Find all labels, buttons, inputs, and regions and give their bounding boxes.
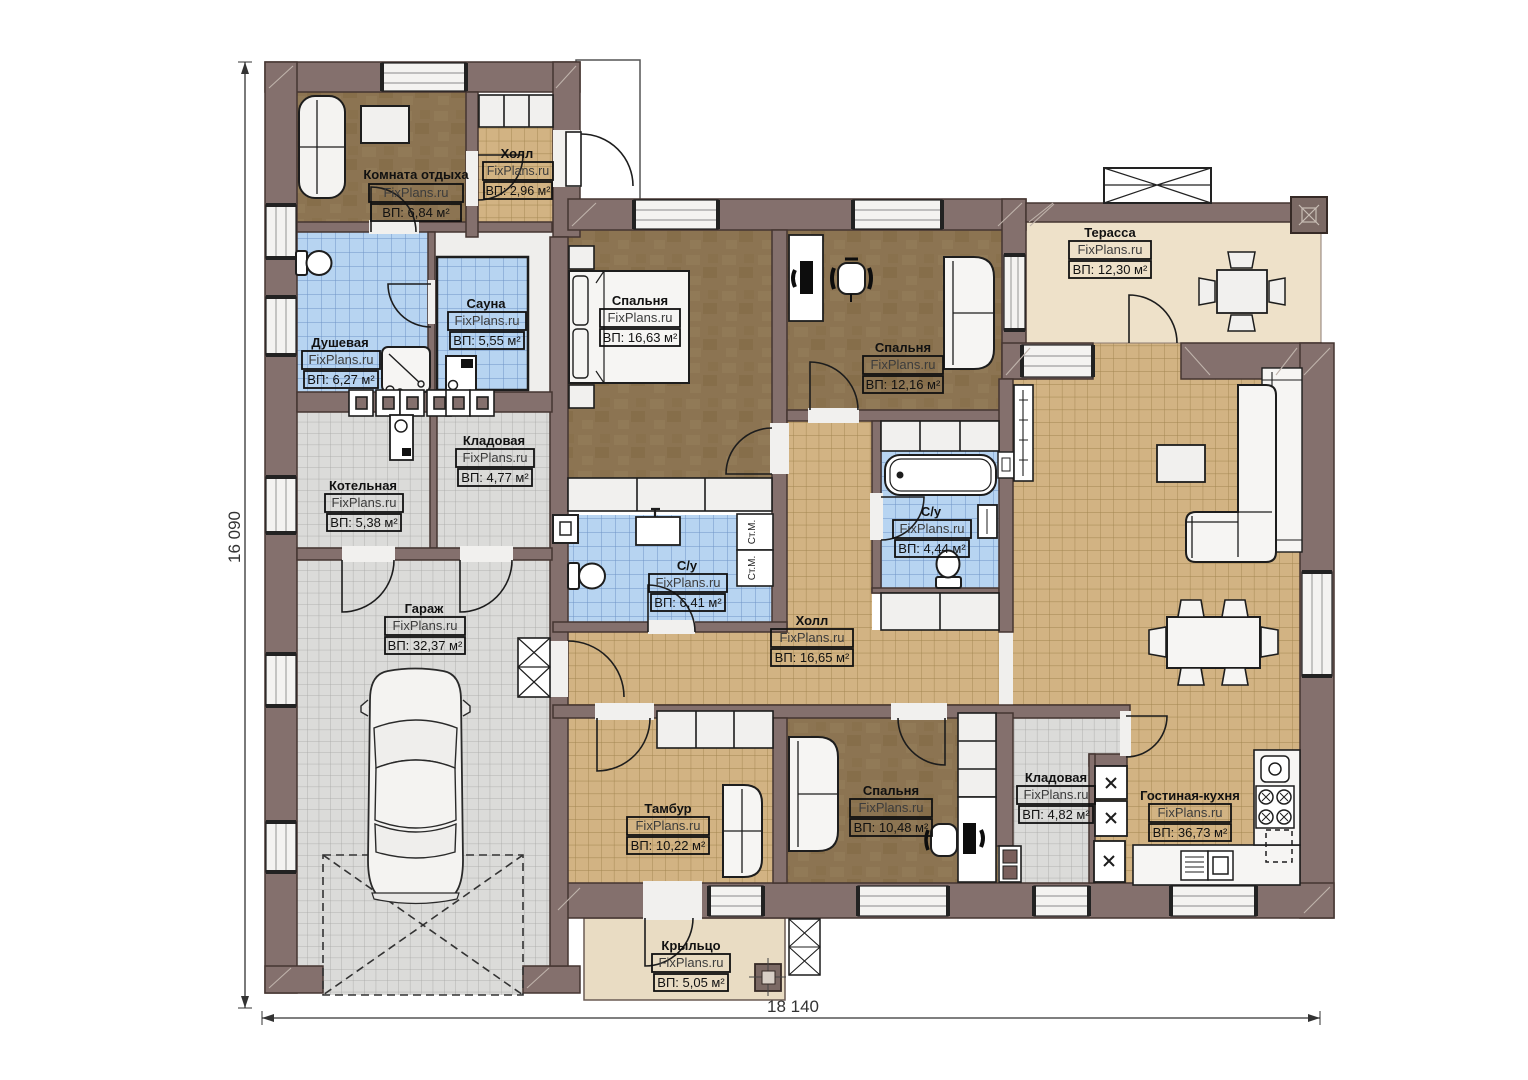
svg-text:ВП: 4,44 м²: ВП: 4,44 м² [898,541,966,556]
svg-text:ВП: 12,16 м²: ВП: 12,16 м² [866,377,941,392]
svg-text:FixPlans.ru: FixPlans.ru [1157,805,1222,820]
svg-text:FixPlans.ru: FixPlans.ru [655,575,720,590]
svg-text:С/у: С/у [921,504,942,519]
svg-text:Терасса: Терасса [1084,225,1136,240]
svg-text:Кладовая: Кладовая [463,433,525,448]
svg-text:FixPlans.ru: FixPlans.ru [870,357,935,372]
svg-text:ВП: 4,77 м²: ВП: 4,77 м² [461,470,529,485]
svg-text:FixPlans.ru: FixPlans.ru [487,164,550,178]
svg-text:ВП: 12,30 м²: ВП: 12,30 м² [1073,262,1148,277]
svg-text:18 140: 18 140 [767,997,819,1016]
svg-text:FixPlans.ru: FixPlans.ru [858,800,923,815]
svg-text:ВП: 6,84 м²: ВП: 6,84 м² [382,205,450,220]
svg-text:FixPlans.ru: FixPlans.ru [658,955,723,970]
svg-text:ВП: 5,05 м²: ВП: 5,05 м² [657,975,725,990]
svg-text:FixPlans.ru: FixPlans.ru [454,313,519,328]
svg-text:FixPlans.ru: FixPlans.ru [607,310,672,325]
svg-text:FixPlans.ru: FixPlans.ru [383,185,448,200]
svg-text:Спальня: Спальня [612,293,668,308]
svg-text:FixPlans.ru: FixPlans.ru [462,450,527,465]
svg-text:FixPlans.ru: FixPlans.ru [392,618,457,633]
svg-text:ВП: 5,38 м²: ВП: 5,38 м² [330,515,398,530]
svg-text:ВП: 32,37 м²: ВП: 32,37 м² [388,638,463,653]
svg-text:Холл: Холл [796,613,829,628]
svg-text:Ст.М.: Ст.М. [747,520,758,545]
svg-text:16 090: 16 090 [225,511,244,563]
svg-text:Котельная: Котельная [329,478,397,493]
svg-text:Гостиная-кухня: Гостиная-кухня [1140,788,1240,803]
svg-text:Крыльцо: Крыльцо [661,938,720,953]
svg-text:FixPlans.ru: FixPlans.ru [1077,242,1142,257]
svg-text:FixPlans.ru: FixPlans.ru [899,521,964,536]
svg-text:Кладовая: Кладовая [1025,770,1087,785]
svg-text:С/у: С/у [677,558,698,573]
svg-text:Комната отдыха: Комната отдыха [363,167,469,182]
svg-text:FixPlans.ru: FixPlans.ru [308,352,373,367]
svg-text:ВП: 16,65 м²: ВП: 16,65 м² [775,650,850,665]
svg-text:Спальня: Спальня [863,783,919,798]
svg-text:ВП: 6,27 м²: ВП: 6,27 м² [307,372,375,387]
svg-text:Душевая: Душевая [311,335,368,350]
svg-text:Сауна: Сауна [466,296,506,311]
svg-text:FixPlans.ru: FixPlans.ru [635,818,700,833]
svg-text:ВП: 16,63 м²: ВП: 16,63 м² [603,330,678,345]
svg-text:Гараж: Гараж [405,601,445,616]
svg-text:Ст.М.: Ст.М. [747,556,758,581]
svg-text:ВП: 2,96 м²: ВП: 2,96 м² [486,184,551,198]
svg-text:FixPlans.ru: FixPlans.ru [779,630,844,645]
svg-text:FixPlans.ru: FixPlans.ru [331,495,396,510]
svg-text:ВП: 6,41 м²: ВП: 6,41 м² [654,595,722,610]
svg-text:ВП: 5,55 м²: ВП: 5,55 м² [453,333,521,348]
svg-text:ВП: 10,48 м²: ВП: 10,48 м² [854,820,929,835]
svg-text:ВП: 4,82 м²: ВП: 4,82 м² [1022,807,1090,822]
svg-text:Холл: Холл [501,146,534,161]
svg-text:Тамбур: Тамбур [644,801,691,816]
svg-text:ВП: 36,73 м²: ВП: 36,73 м² [1153,825,1228,840]
svg-text:FixPlans.ru: FixPlans.ru [1023,787,1088,802]
svg-text:ВП: 10,22 м²: ВП: 10,22 м² [631,838,706,853]
svg-text:Спальня: Спальня [875,340,931,355]
